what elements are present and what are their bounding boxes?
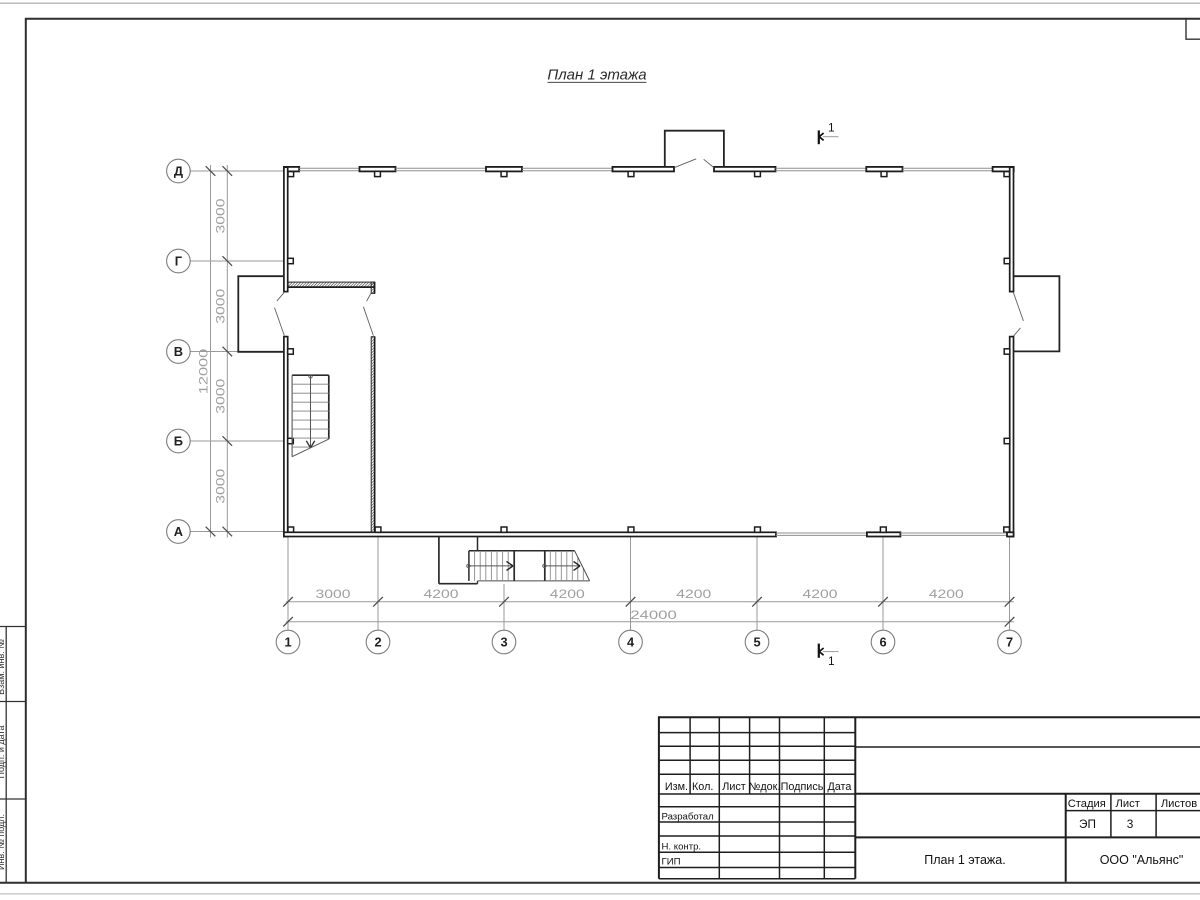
svg-text:Подпись: Подпись: [781, 781, 824, 793]
svg-text:План 1 этажа: План 1 этажа: [547, 67, 646, 84]
svg-text:ГИП: ГИП: [662, 856, 681, 867]
svg-text:1: 1: [828, 123, 834, 135]
svg-text:3000: 3000: [316, 588, 351, 601]
svg-text:3000: 3000: [214, 379, 227, 414]
svg-text:Листов: Листов: [1161, 798, 1197, 810]
svg-text:3000: 3000: [214, 289, 227, 324]
svg-text:7: 7: [1006, 635, 1013, 650]
svg-text:Разработал: Разработал: [662, 811, 714, 822]
svg-text:Инв. № подл.: Инв. № подл.: [0, 814, 6, 870]
svg-text:3: 3: [500, 635, 507, 650]
svg-text:6: 6: [879, 635, 886, 650]
svg-text:№док.: №док.: [749, 781, 781, 793]
svg-text:План 1 этажа.: План 1 этажа.: [924, 853, 1005, 867]
svg-text:2: 2: [374, 635, 381, 650]
svg-text:5: 5: [753, 635, 760, 650]
svg-text:24000: 24000: [630, 609, 677, 622]
svg-text:Д: Д: [174, 164, 183, 179]
svg-text:3000: 3000: [214, 469, 227, 504]
svg-text:Взам. инв. №: Взам. инв. №: [0, 639, 6, 695]
svg-text:4200: 4200: [424, 588, 459, 601]
svg-text:1: 1: [284, 635, 291, 650]
svg-text:Б: Б: [174, 434, 183, 449]
svg-text:Лист: Лист: [722, 781, 746, 793]
svg-text:12000: 12000: [197, 349, 210, 395]
svg-text:Лист: Лист: [1116, 798, 1140, 810]
svg-text:А: А: [174, 524, 183, 539]
svg-text:Стадия: Стадия: [1068, 798, 1106, 810]
svg-text:ООО "Альянс": ООО "Альянс": [1100, 853, 1184, 867]
svg-text:Изм.: Изм.: [665, 781, 688, 793]
svg-text:В: В: [174, 344, 183, 359]
svg-text:1: 1: [828, 656, 834, 668]
svg-text:4: 4: [627, 635, 635, 650]
svg-text:4200: 4200: [550, 588, 585, 601]
svg-text:3000: 3000: [214, 199, 227, 234]
svg-text:3: 3: [1127, 817, 1134, 831]
svg-text:4200: 4200: [929, 588, 964, 601]
svg-text:4200: 4200: [803, 588, 838, 601]
svg-text:Г: Г: [175, 254, 182, 269]
svg-text:Н. контр.: Н. контр.: [662, 842, 702, 853]
svg-text:4200: 4200: [676, 588, 711, 601]
svg-text:Дата: Дата: [827, 781, 851, 793]
svg-text:Подп. и дата: Подп. и дата: [0, 725, 6, 778]
svg-text:Кол.: Кол.: [692, 781, 713, 793]
svg-text:ЭП: ЭП: [1079, 817, 1096, 831]
